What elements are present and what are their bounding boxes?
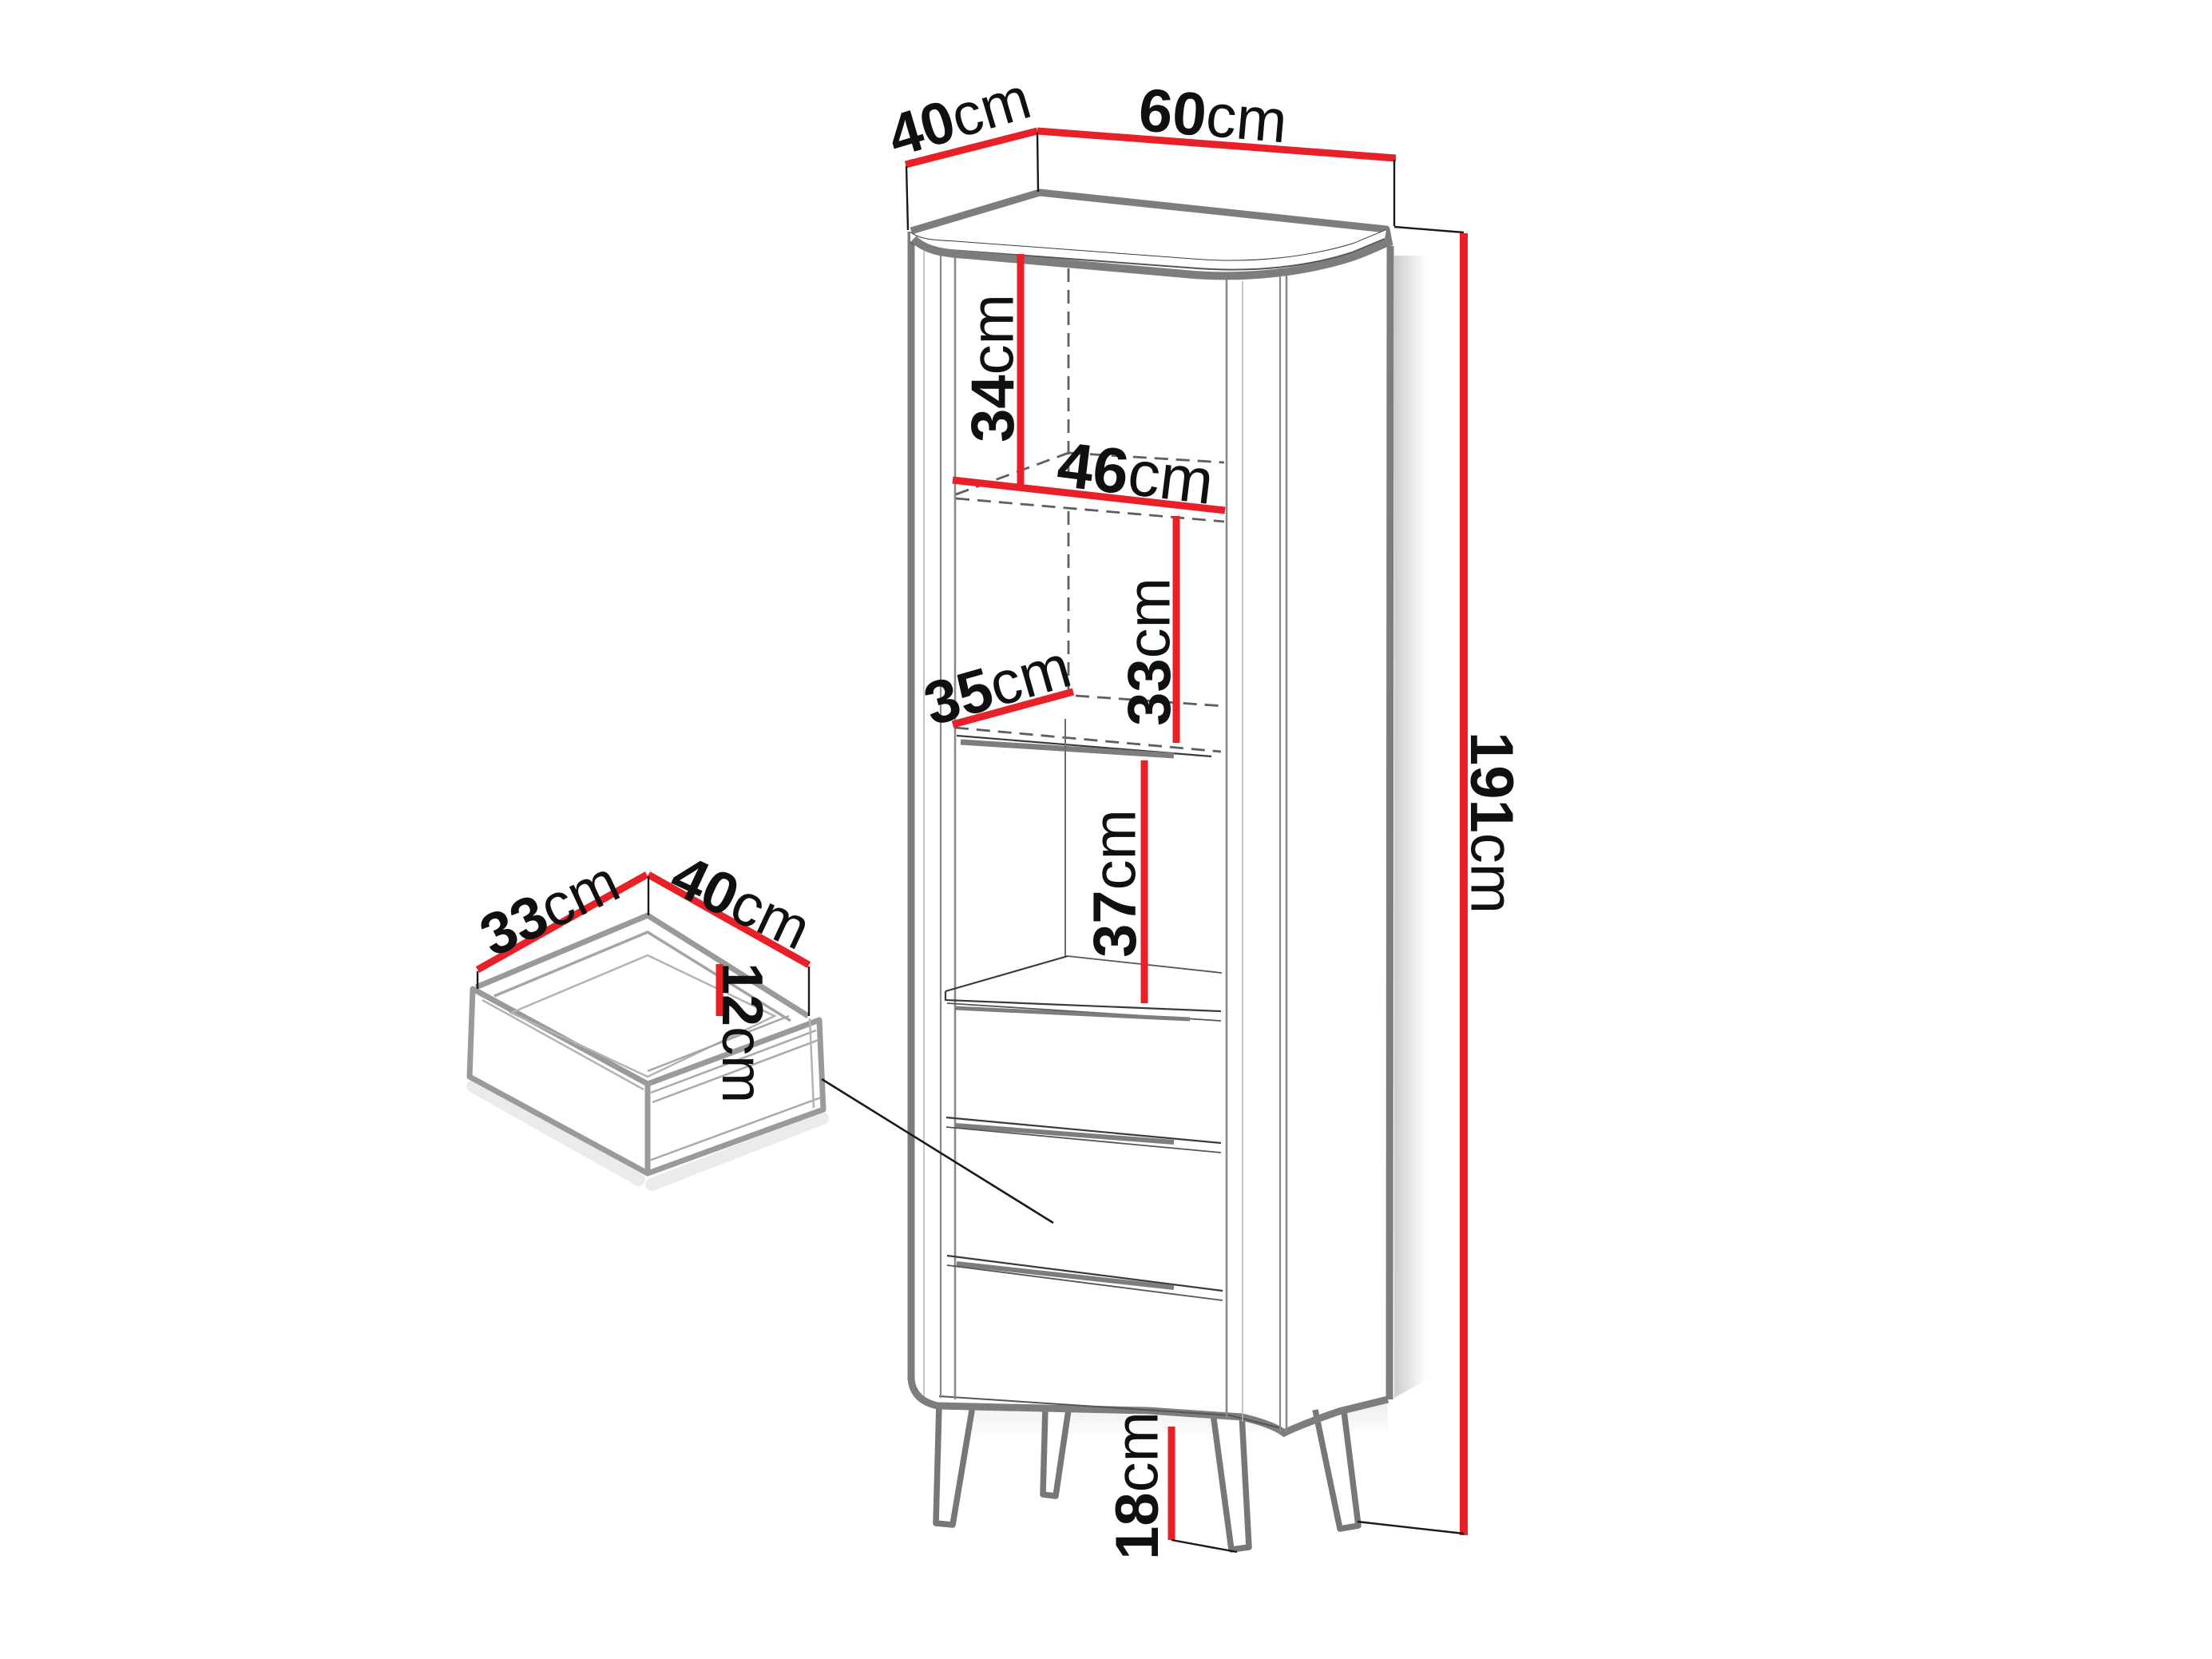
svg-text:37cm: 37cm [1081,809,1149,958]
svg-text:60cm: 60cm [1136,76,1290,157]
svg-text:33cm: 33cm [1116,577,1183,726]
svg-text:12cm: 12cm [710,962,774,1103]
svg-text:34cm: 34cm [959,294,1027,443]
svg-text:191cm: 191cm [1458,732,1526,914]
svg-text:18cm: 18cm [1104,1411,1171,1560]
